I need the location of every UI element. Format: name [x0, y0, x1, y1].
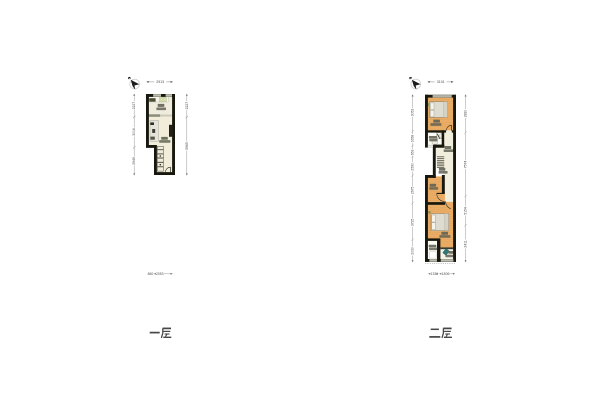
svg-text:2949: 2949: [132, 157, 136, 165]
svg-text:2227: 2227: [185, 102, 189, 110]
svg-text:3053: 3053: [411, 109, 415, 117]
svg-text:860: 860: [148, 272, 154, 276]
svg-text:2590: 2590: [411, 163, 415, 171]
svg-text:5154: 5154: [464, 207, 468, 215]
svg-text:2227: 2227: [132, 102, 136, 110]
svg-text:3725: 3725: [411, 219, 415, 227]
svg-text:3101: 3101: [437, 80, 445, 84]
svg-text:2053: 2053: [156, 272, 164, 276]
svg-text:2030: 2030: [411, 247, 415, 255]
svg-text:1806: 1806: [442, 272, 450, 276]
svg-text:7574: 7574: [464, 161, 468, 169]
svg-text:2675: 2675: [411, 187, 415, 195]
svg-text:2411: 2411: [464, 240, 468, 247]
svg-text:3016: 3016: [132, 128, 136, 136]
svg-text:2830: 2830: [464, 110, 468, 118]
svg-text:653: 653: [411, 149, 415, 155]
svg-text:5965: 5965: [185, 142, 189, 150]
svg-text:2913: 2913: [156, 80, 164, 84]
svg-text:1658: 1658: [411, 135, 415, 143]
